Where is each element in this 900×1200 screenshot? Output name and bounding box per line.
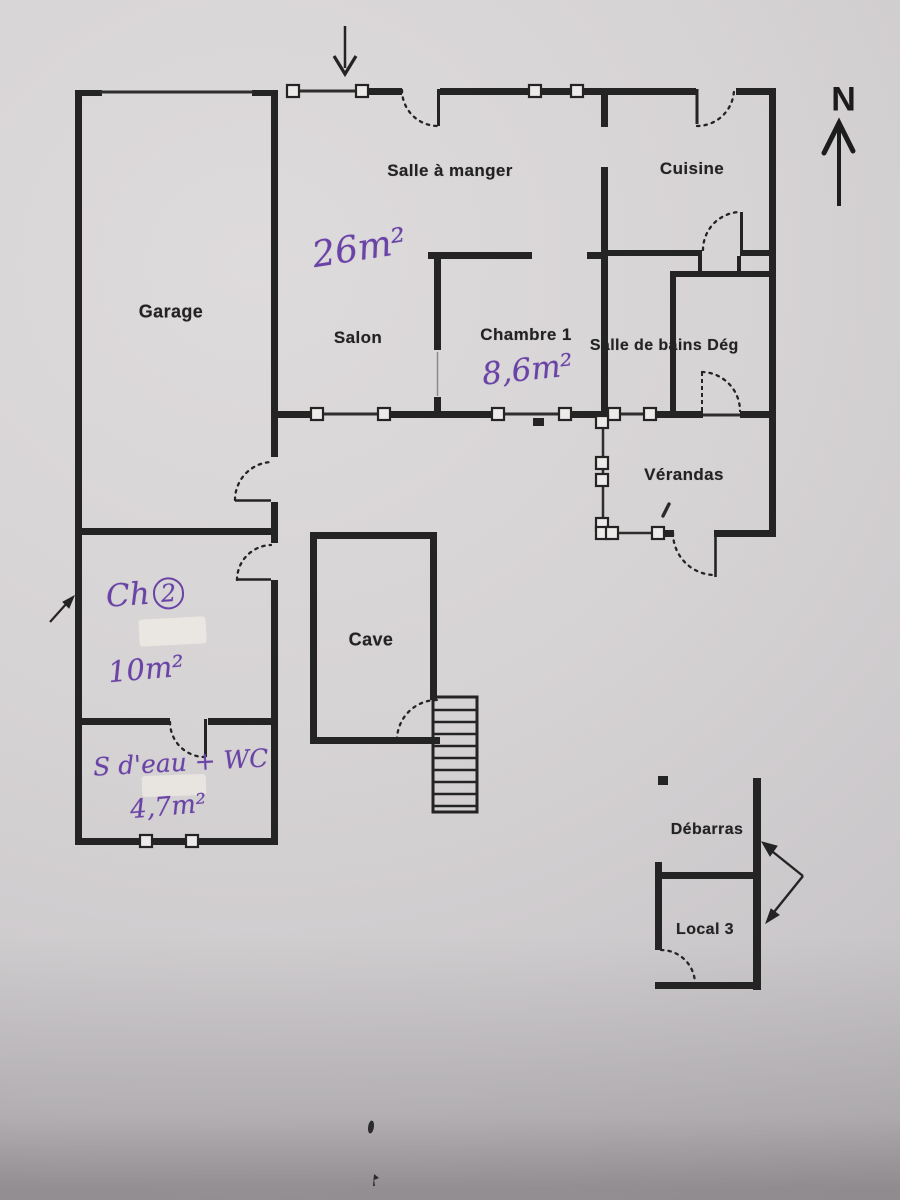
room-label-local3: Local 3 (676, 921, 734, 939)
annotation-ch2: Ch2 (105, 573, 186, 614)
room-label-verandas: Vérandas (644, 465, 724, 485)
stairs (433, 697, 477, 812)
ch2-pointer-arrow (50, 596, 74, 622)
room-label-salon: Salon (334, 328, 382, 348)
room-label-garage: Garage (139, 302, 203, 323)
ink-specks (368, 504, 669, 1186)
room-label-deg: Dég (707, 337, 738, 355)
annotation-ch2-prefix: Ch (105, 576, 151, 615)
walls (75, 88, 776, 990)
debarras-pointer-arrows (762, 842, 803, 923)
entrance-arrow-icon (334, 26, 356, 74)
room-label-debarras: Débarras (671, 821, 744, 839)
room-label-salle-de-bains: Salle de bains (590, 337, 702, 355)
circled-2: 2 (152, 576, 186, 610)
floor-plan-page: Salle à manger Cuisine Garage Salon Cham… (0, 0, 900, 1200)
room-label-cuisine: Cuisine (660, 159, 724, 179)
north-label: N (831, 81, 857, 120)
room-label-chambre1: Chambre 1 (480, 325, 571, 345)
windows (140, 85, 664, 847)
room-label-salle-a-manger: Salle à manger (387, 161, 513, 181)
room-label-cave: Cave (349, 630, 394, 651)
annotation-area-ch2: 10m² (107, 649, 186, 689)
north-arrow-icon (824, 123, 853, 206)
